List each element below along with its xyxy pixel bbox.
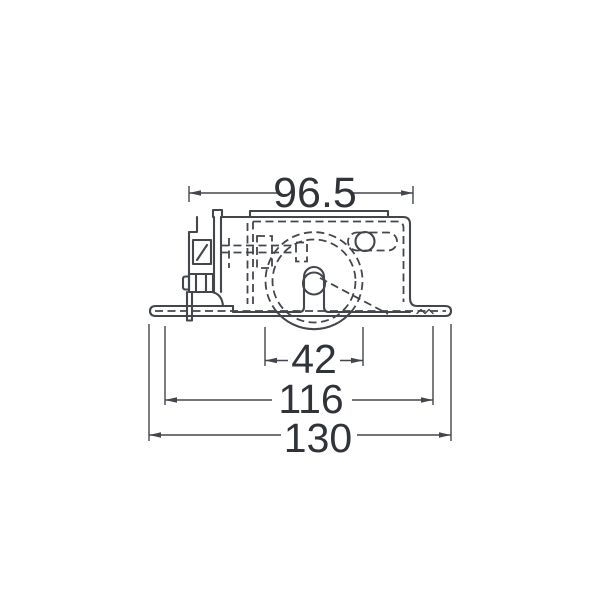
dim-overall-width-label: 130 bbox=[284, 415, 352, 461]
dim-130-arrow-left bbox=[149, 432, 161, 437]
technical-drawing: 96.5 42 116 130 bbox=[0, 0, 600, 600]
dim-top-arrow-right bbox=[401, 190, 413, 195]
axle-circle bbox=[303, 273, 325, 295]
wheel-bottom-arc bbox=[277, 312, 351, 329]
dim-top-width-label: 96.5 bbox=[273, 169, 357, 217]
wheel-inner-hidden bbox=[273, 240, 356, 323]
bracket-foot-fillet bbox=[212, 292, 223, 306]
dim-116-arrow-right bbox=[421, 397, 433, 402]
dim-130-arrow-right bbox=[439, 432, 451, 437]
inner-cover-top bbox=[253, 222, 404, 303]
clamp-hidden-block bbox=[296, 243, 307, 262]
hidden-lines bbox=[155, 222, 446, 323]
bracket-top-tab bbox=[213, 210, 222, 217]
dim-42-arrow-right bbox=[351, 358, 363, 363]
drawing-canvas: 96.5 42 116 130 bbox=[0, 0, 600, 600]
adjuster-bolt-facets bbox=[196, 274, 206, 292]
dim-top-arrow-left bbox=[189, 190, 201, 195]
pivot-hole bbox=[356, 232, 375, 251]
adjuster-nut-chamfer bbox=[197, 245, 207, 260]
adjuster-bolt bbox=[189, 274, 213, 292]
dim-42-arrow-left bbox=[265, 358, 277, 363]
dim-116-arrow-left bbox=[165, 397, 177, 402]
